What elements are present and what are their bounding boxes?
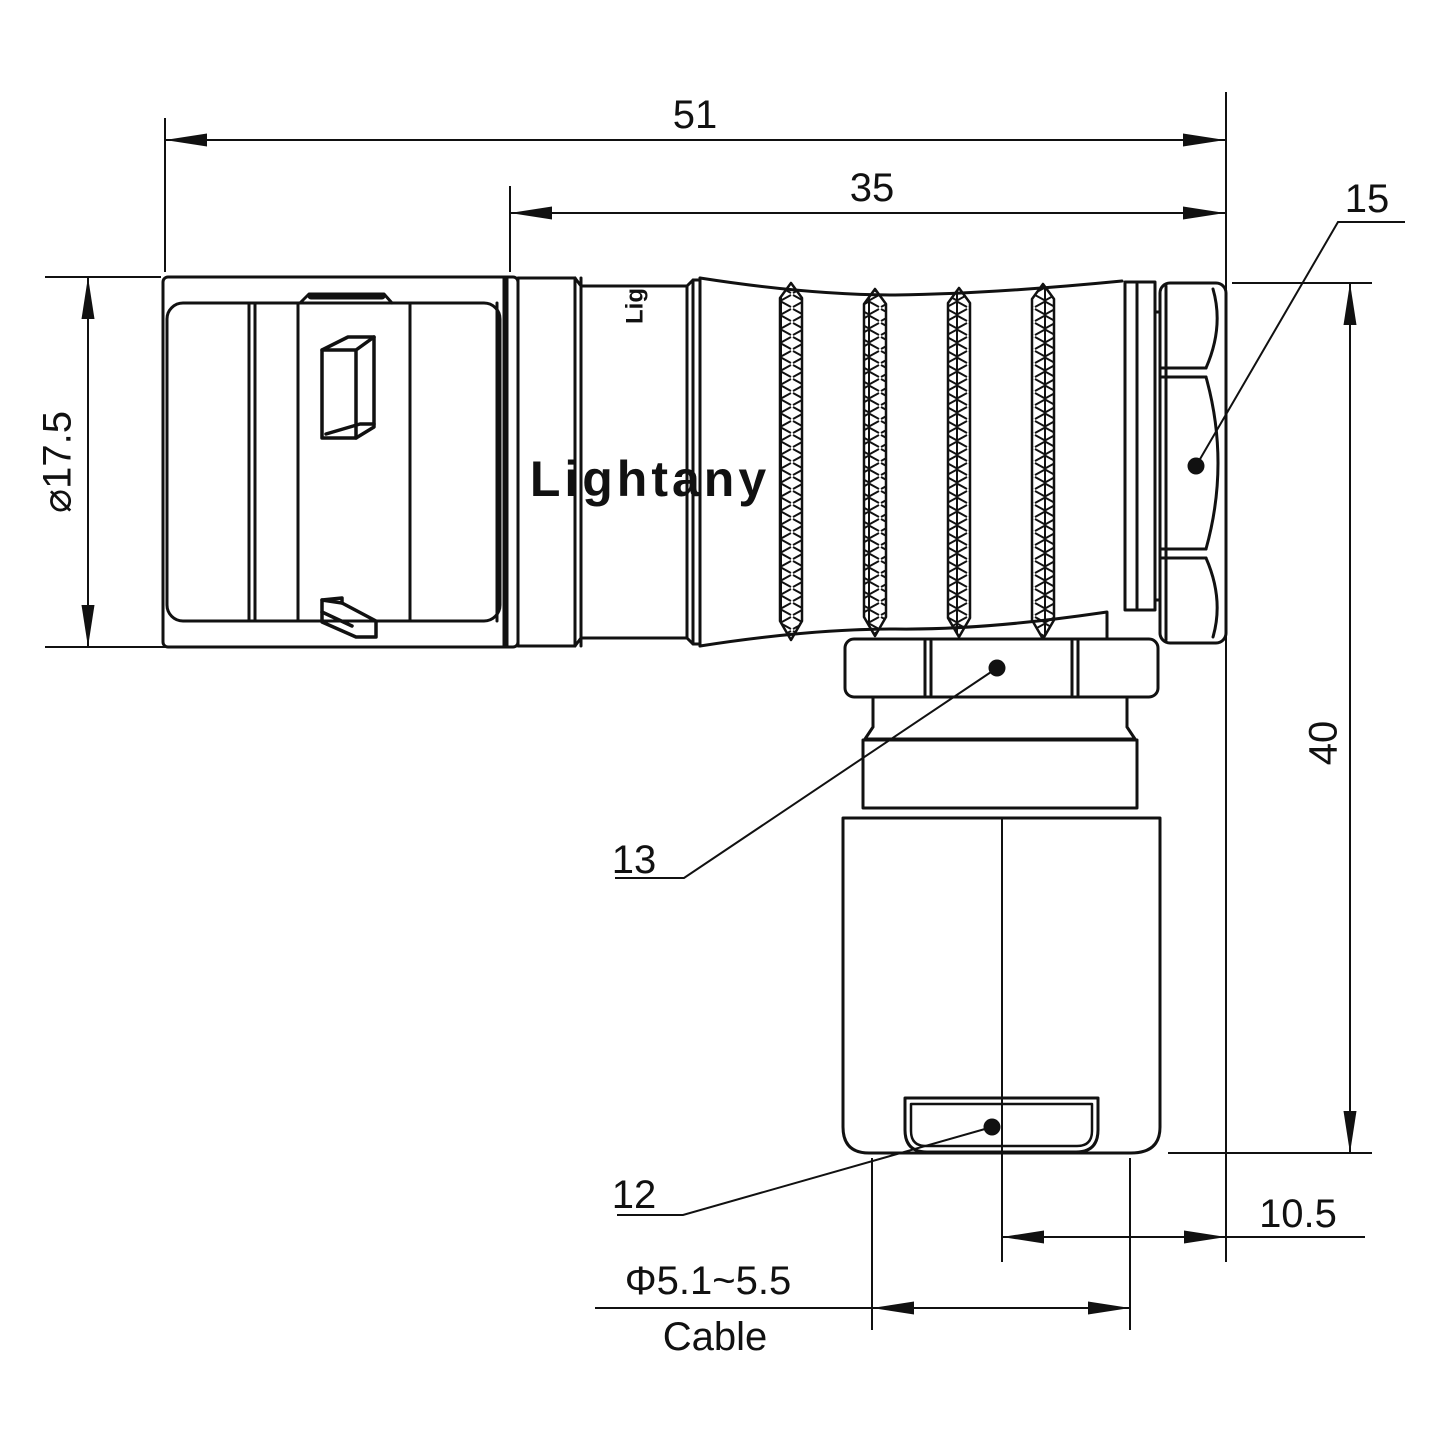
arrowhead <box>82 605 95 647</box>
arrowhead <box>1183 207 1225 220</box>
connector-body <box>163 277 1226 1153</box>
knurl-band <box>864 289 886 636</box>
arrowhead <box>1183 134 1225 147</box>
dim-text-coupling-nut: 15 <box>1345 177 1390 221</box>
leader-dot <box>1188 458 1205 475</box>
dim-text-cable-diameter: Φ5.1~5.5 <box>625 1259 791 1303</box>
dim-text-cable-bushing: 12 <box>612 1173 657 1217</box>
knurl-bands <box>780 283 1054 640</box>
technical-drawing-canvas: 51 35 15 ⌀17.5 40 13 12 10.5 Φ5.1~5.5 Ca… <box>0 0 1440 1440</box>
leader-cable-bushing <box>617 1119 1001 1216</box>
knurl-band <box>780 283 802 640</box>
leader-dot <box>989 660 1006 677</box>
dim-overall-height <box>1344 283 1357 1153</box>
coupling-nut-facet-arcs <box>1206 289 1218 637</box>
latch-window <box>322 337 374 438</box>
knurl-band <box>948 288 970 637</box>
dim-text-cable-word: Cable <box>663 1315 768 1359</box>
arrowhead <box>872 1302 914 1315</box>
arrowhead <box>1002 1231 1044 1244</box>
arrowhead <box>510 207 552 220</box>
arrowhead <box>1344 1111 1357 1153</box>
sleeve-top-edge <box>700 278 1122 295</box>
body-logo: Lig <box>621 288 648 324</box>
dim-text-overall-height: 40 <box>1302 721 1346 766</box>
arrowhead <box>1088 1302 1130 1315</box>
front-plug-shell <box>163 277 518 647</box>
front-shell-outline <box>163 277 518 647</box>
dim-text-axis-offset: 10.5 <box>1259 1192 1337 1236</box>
watermark: Lightany <box>530 451 770 507</box>
backshell-tube <box>863 740 1137 808</box>
arrowhead <box>1184 1231 1226 1244</box>
dim-text-rear-length: 35 <box>850 166 895 210</box>
leader-coupling-nut <box>1188 222 1406 475</box>
latch-hook <box>322 598 376 637</box>
leader-dot <box>984 1119 1001 1136</box>
arrowhead <box>1344 283 1357 325</box>
dim-text-backshell-nut: 13 <box>612 838 657 882</box>
arrowhead <box>165 134 207 147</box>
leader-backshell-nut <box>615 660 1006 879</box>
knurl-band <box>1032 284 1054 639</box>
rear-flange <box>1125 282 1160 610</box>
front-collar-lines <box>504 277 507 647</box>
dim-text-front-diameter: ⌀17.5 <box>36 411 80 513</box>
connector-drawing: 51 35 15 ⌀17.5 40 13 12 10.5 Φ5.1~5.5 Ca… <box>0 0 1440 1440</box>
dim-text-overall-length: 51 <box>673 93 718 137</box>
dim-cable-diameter <box>595 1302 1130 1315</box>
backshell-neck <box>865 697 1135 739</box>
arrowhead <box>82 277 95 319</box>
dim-front-diameter <box>82 277 95 647</box>
